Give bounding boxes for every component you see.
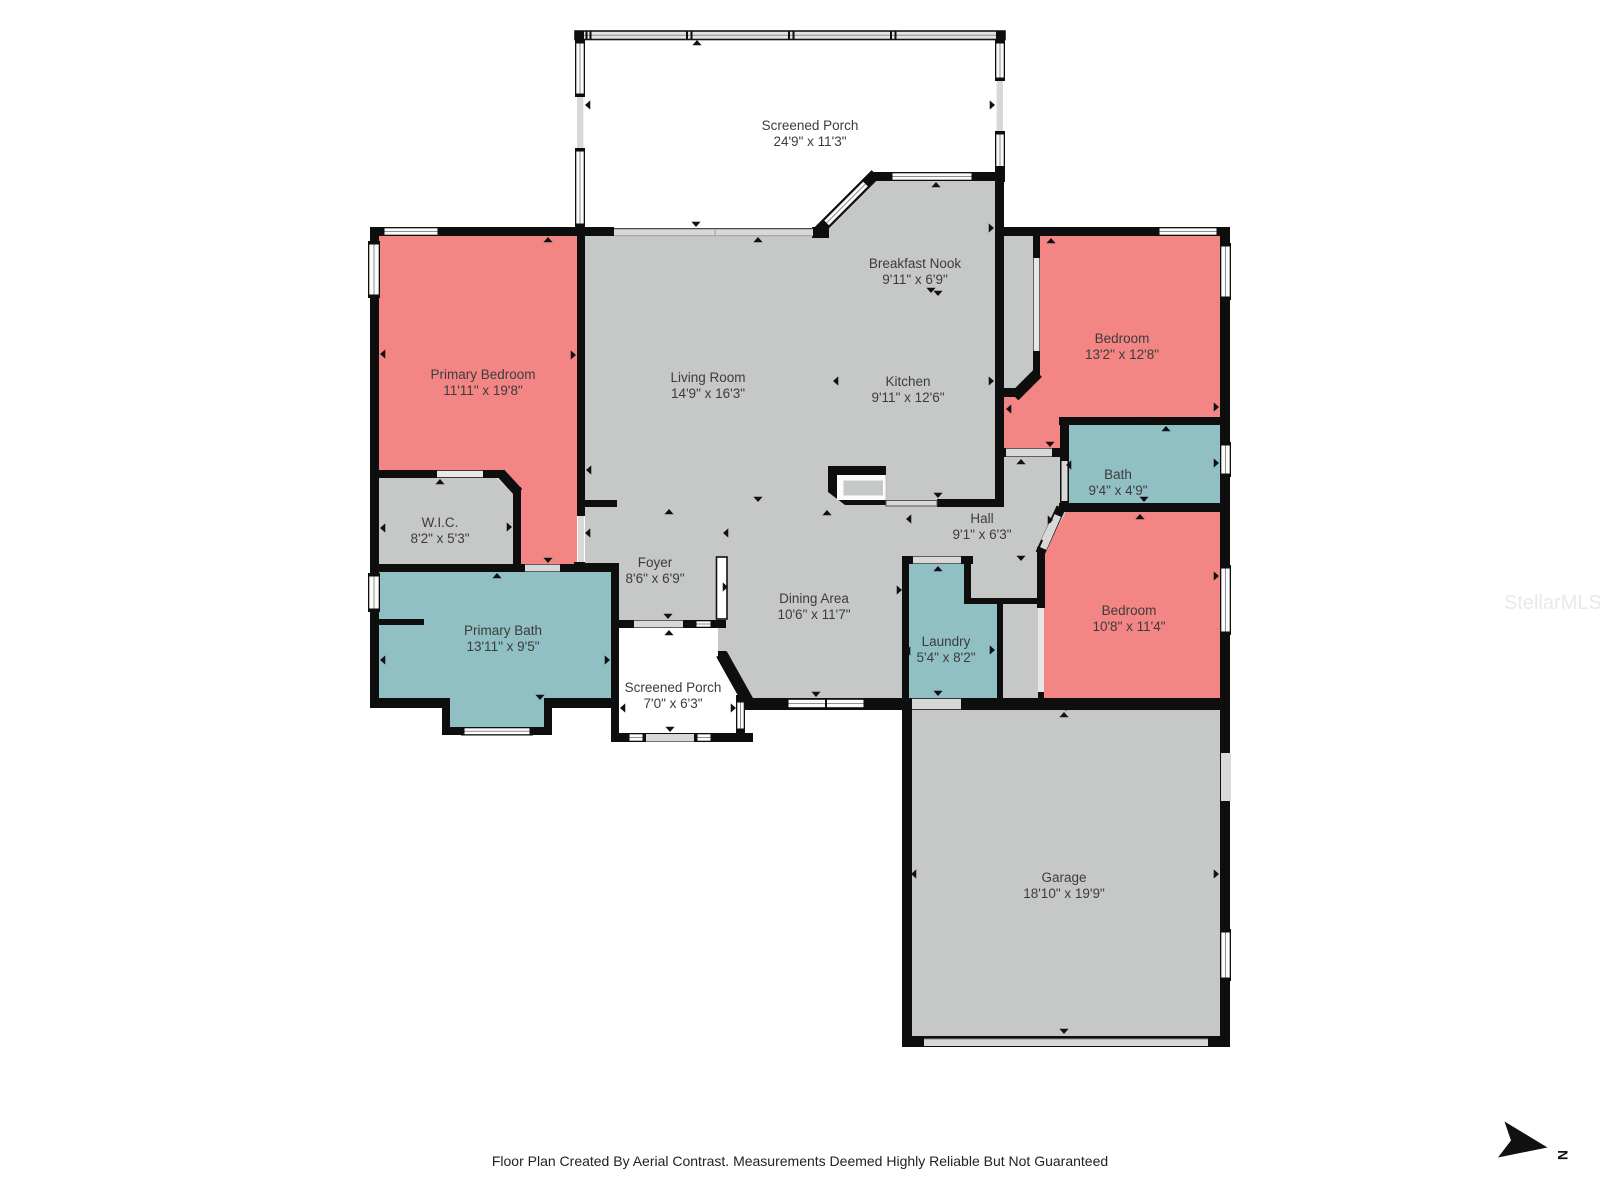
- svg-text:18'10" x 19'9": 18'10" x 19'9": [1023, 886, 1105, 901]
- svg-text:Foyer: Foyer: [638, 555, 673, 570]
- svg-text:Laundry: Laundry: [922, 634, 971, 649]
- svg-text:W.I.C.: W.I.C.: [422, 515, 459, 530]
- svg-text:13'2" x 12'8": 13'2" x 12'8": [1085, 347, 1159, 362]
- svg-text:14'9" x 16'3": 14'9" x 16'3": [671, 386, 745, 401]
- svg-text:Primary Bath: Primary Bath: [464, 623, 542, 638]
- svg-text:Floor Plan Created By Aerial C: Floor Plan Created By Aerial Contrast. M…: [492, 1153, 1108, 1169]
- svg-text:7'0" x 6'3": 7'0" x 6'3": [643, 696, 702, 711]
- svg-text:13'11" x 9'5": 13'11" x 9'5": [466, 639, 539, 654]
- svg-text:9'11" x 6'9": 9'11" x 6'9": [882, 272, 948, 287]
- svg-text:Screened Porch: Screened Porch: [625, 680, 722, 695]
- svg-text:8'6" x 6'9": 8'6" x 6'9": [625, 571, 684, 586]
- svg-text:8'2" x 5'3": 8'2" x 5'3": [410, 531, 469, 546]
- svg-text:11'11" x 19'8": 11'11" x 19'8": [443, 383, 523, 398]
- svg-text:24'9" x 11'3": 24'9" x 11'3": [773, 134, 846, 149]
- svg-text:N: N: [1555, 1150, 1571, 1160]
- svg-text:Dining Area: Dining Area: [779, 591, 849, 606]
- svg-text:Bedroom: Bedroom: [1095, 331, 1150, 346]
- svg-text:Primary Bedroom: Primary Bedroom: [430, 367, 535, 382]
- svg-text:Garage: Garage: [1041, 870, 1086, 885]
- svg-text:9'1" x 6'3": 9'1" x 6'3": [952, 527, 1011, 542]
- svg-text:Bedroom: Bedroom: [1102, 603, 1157, 618]
- svg-text:10'6" x 11'7": 10'6" x 11'7": [777, 607, 850, 622]
- svg-text:9'4" x 4'9": 9'4" x 4'9": [1088, 483, 1147, 498]
- svg-text:Breakfast Nook: Breakfast Nook: [869, 256, 962, 271]
- svg-text:Screened Porch: Screened Porch: [762, 118, 859, 133]
- svg-text:9'11" x 12'6": 9'11" x 12'6": [871, 390, 944, 405]
- svg-text:Bath: Bath: [1104, 467, 1132, 482]
- svg-text:Kitchen: Kitchen: [885, 374, 930, 389]
- svg-text:10'8" x 11'4": 10'8" x 11'4": [1092, 619, 1165, 634]
- svg-text:Living Room: Living Room: [670, 370, 745, 385]
- svg-text:StellarMLS: StellarMLS: [1504, 592, 1600, 614]
- svg-text:5'4" x 8'2": 5'4" x 8'2": [916, 650, 975, 665]
- svg-text:Hall: Hall: [970, 511, 993, 526]
